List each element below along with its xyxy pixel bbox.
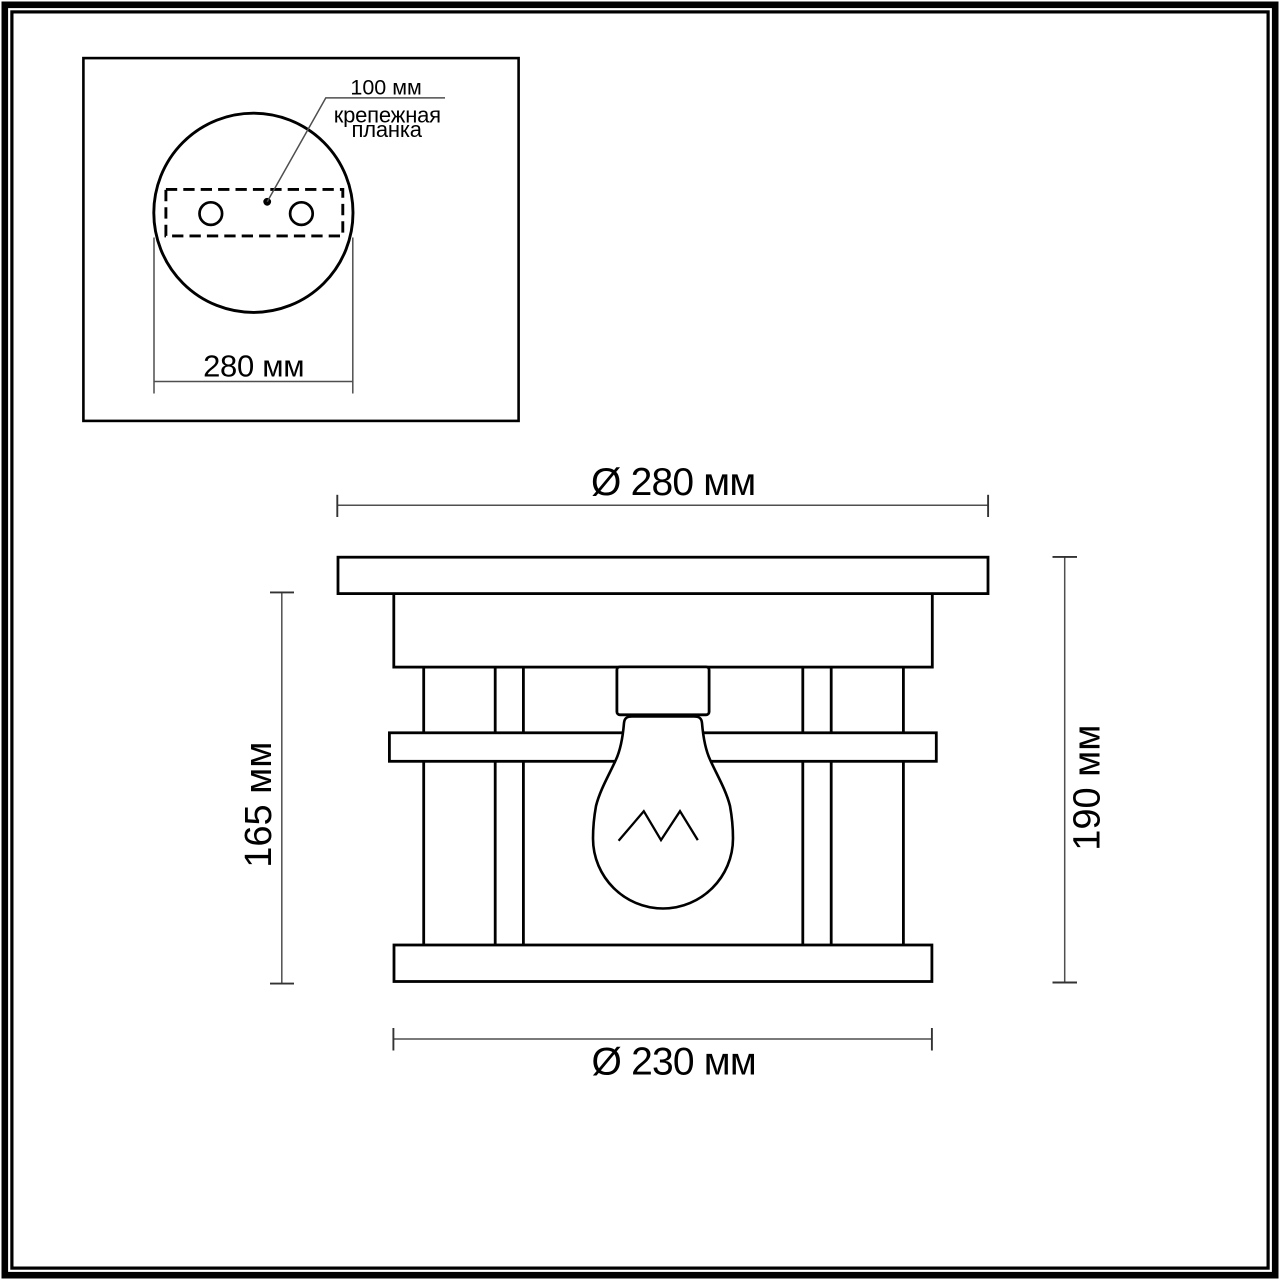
- svg-text:165 мм: 165 мм: [238, 742, 280, 868]
- svg-text:Ø 280 мм: Ø 280 мм: [591, 461, 755, 504]
- svg-text:190 мм: 190 мм: [1066, 725, 1108, 851]
- svg-text:100 мм: 100 мм: [350, 76, 421, 100]
- svg-text:280 мм: 280 мм: [203, 349, 304, 384]
- svg-text:Ø 230 мм: Ø 230 мм: [592, 1041, 756, 1084]
- svg-text:планка: планка: [352, 117, 423, 142]
